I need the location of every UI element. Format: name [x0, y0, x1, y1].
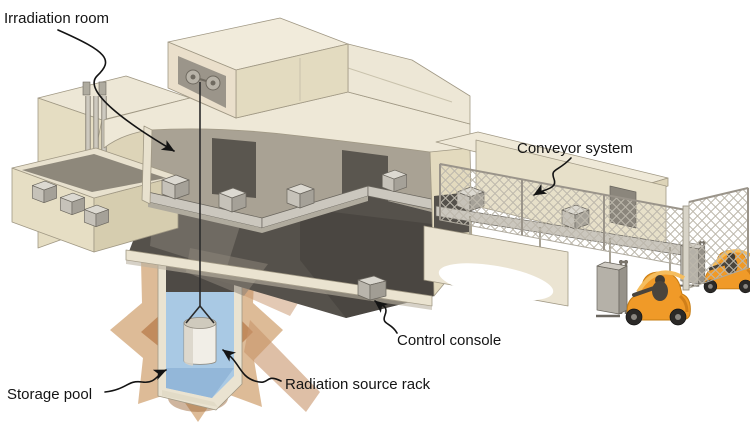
forklift-1: [596, 260, 690, 325]
annex-box-3: [84, 205, 108, 227]
label-conveyor-system: Conveyor system: [517, 140, 633, 157]
conveyor-box-4: [382, 170, 406, 192]
facility-diagram: Irradiation room Conveyor system Control…: [0, 0, 750, 425]
building: [12, 18, 472, 318]
cutaway-left-edge: [142, 126, 152, 204]
label-irradiation-room: Irradiation room: [4, 10, 109, 27]
radiation-source-cylinder: [184, 318, 216, 366]
conveyor-box-1: [162, 175, 189, 199]
conveyor-box-3: [287, 184, 314, 208]
pipe-stub-right: [99, 82, 106, 95]
control-console: [358, 276, 386, 300]
label-radiation-source-rack: Radiation source rack: [285, 376, 431, 393]
annex-box-2: [60, 193, 84, 215]
conveyor-box-2: [219, 188, 246, 212]
label-storage-pool: Storage pool: [7, 386, 92, 403]
label-control-console: Control console: [397, 332, 501, 349]
cylinder-shade: [184, 323, 193, 366]
pipe-stub-left: [83, 82, 90, 95]
annex-box-1: [32, 181, 56, 203]
irradiation-facility-figure: Irradiation room Conveyor system Control…: [0, 0, 750, 425]
